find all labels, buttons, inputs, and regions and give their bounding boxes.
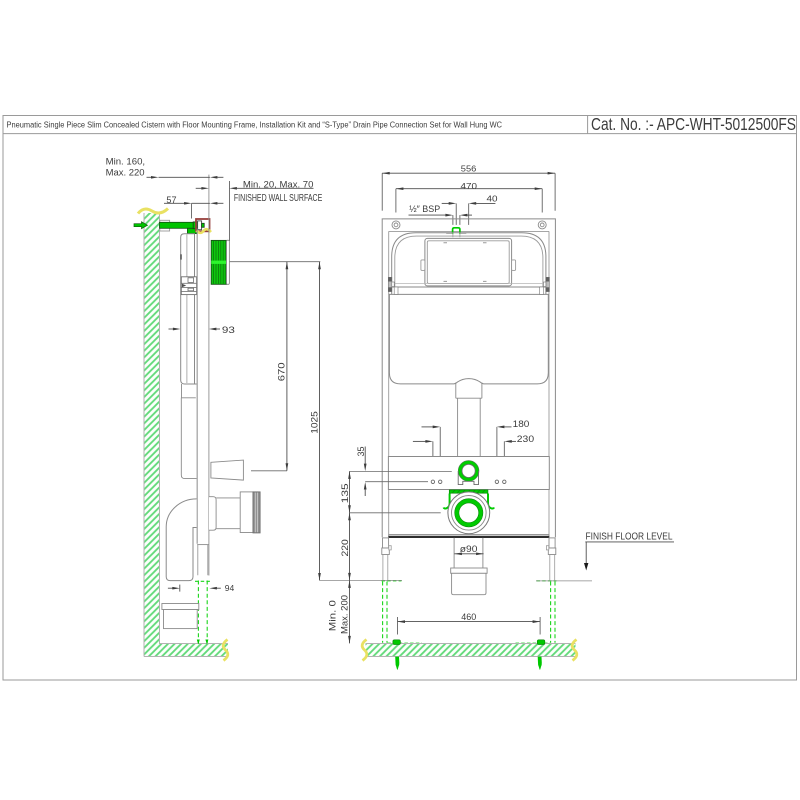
svg-text:35: 35 (356, 447, 366, 457)
svg-text:220: 220 (340, 539, 350, 556)
svg-text:94: 94 (225, 583, 235, 593)
svg-text:FINISHED WALL SURFACE: FINISHED WALL SURFACE (234, 193, 323, 204)
svg-text:½″ BSP: ½″ BSP (409, 204, 440, 214)
svg-text:1025: 1025 (309, 411, 319, 434)
svg-text:230: 230 (517, 434, 534, 444)
svg-text:ø90: ø90 (460, 544, 478, 554)
svg-text:Min. 160,: Min. 160, (106, 156, 146, 166)
svg-text:Cat. No. :- APC-WHT-5012500FS: Cat. No. :- APC-WHT-5012500FS (591, 114, 796, 134)
svg-text:470: 470 (461, 181, 478, 191)
svg-text:Pneumatic Single Piece Slim Co: Pneumatic Single Piece Slim Concealed Ci… (7, 120, 503, 129)
svg-text:670: 670 (277, 363, 287, 382)
svg-text:556: 556 (461, 164, 477, 174)
svg-text:93: 93 (222, 325, 235, 335)
svg-text:Min. 0: Min. 0 (327, 600, 337, 631)
svg-text:135: 135 (340, 483, 350, 503)
svg-text:40: 40 (487, 193, 498, 203)
svg-text:Max. 200: Max. 200 (339, 595, 349, 634)
svg-text:180: 180 (513, 419, 530, 429)
svg-text:FINISH FLOOR LEVEL: FINISH FLOOR LEVEL (586, 532, 674, 543)
svg-text:460: 460 (461, 612, 476, 622)
svg-text:Max. 220: Max. 220 (106, 168, 145, 178)
